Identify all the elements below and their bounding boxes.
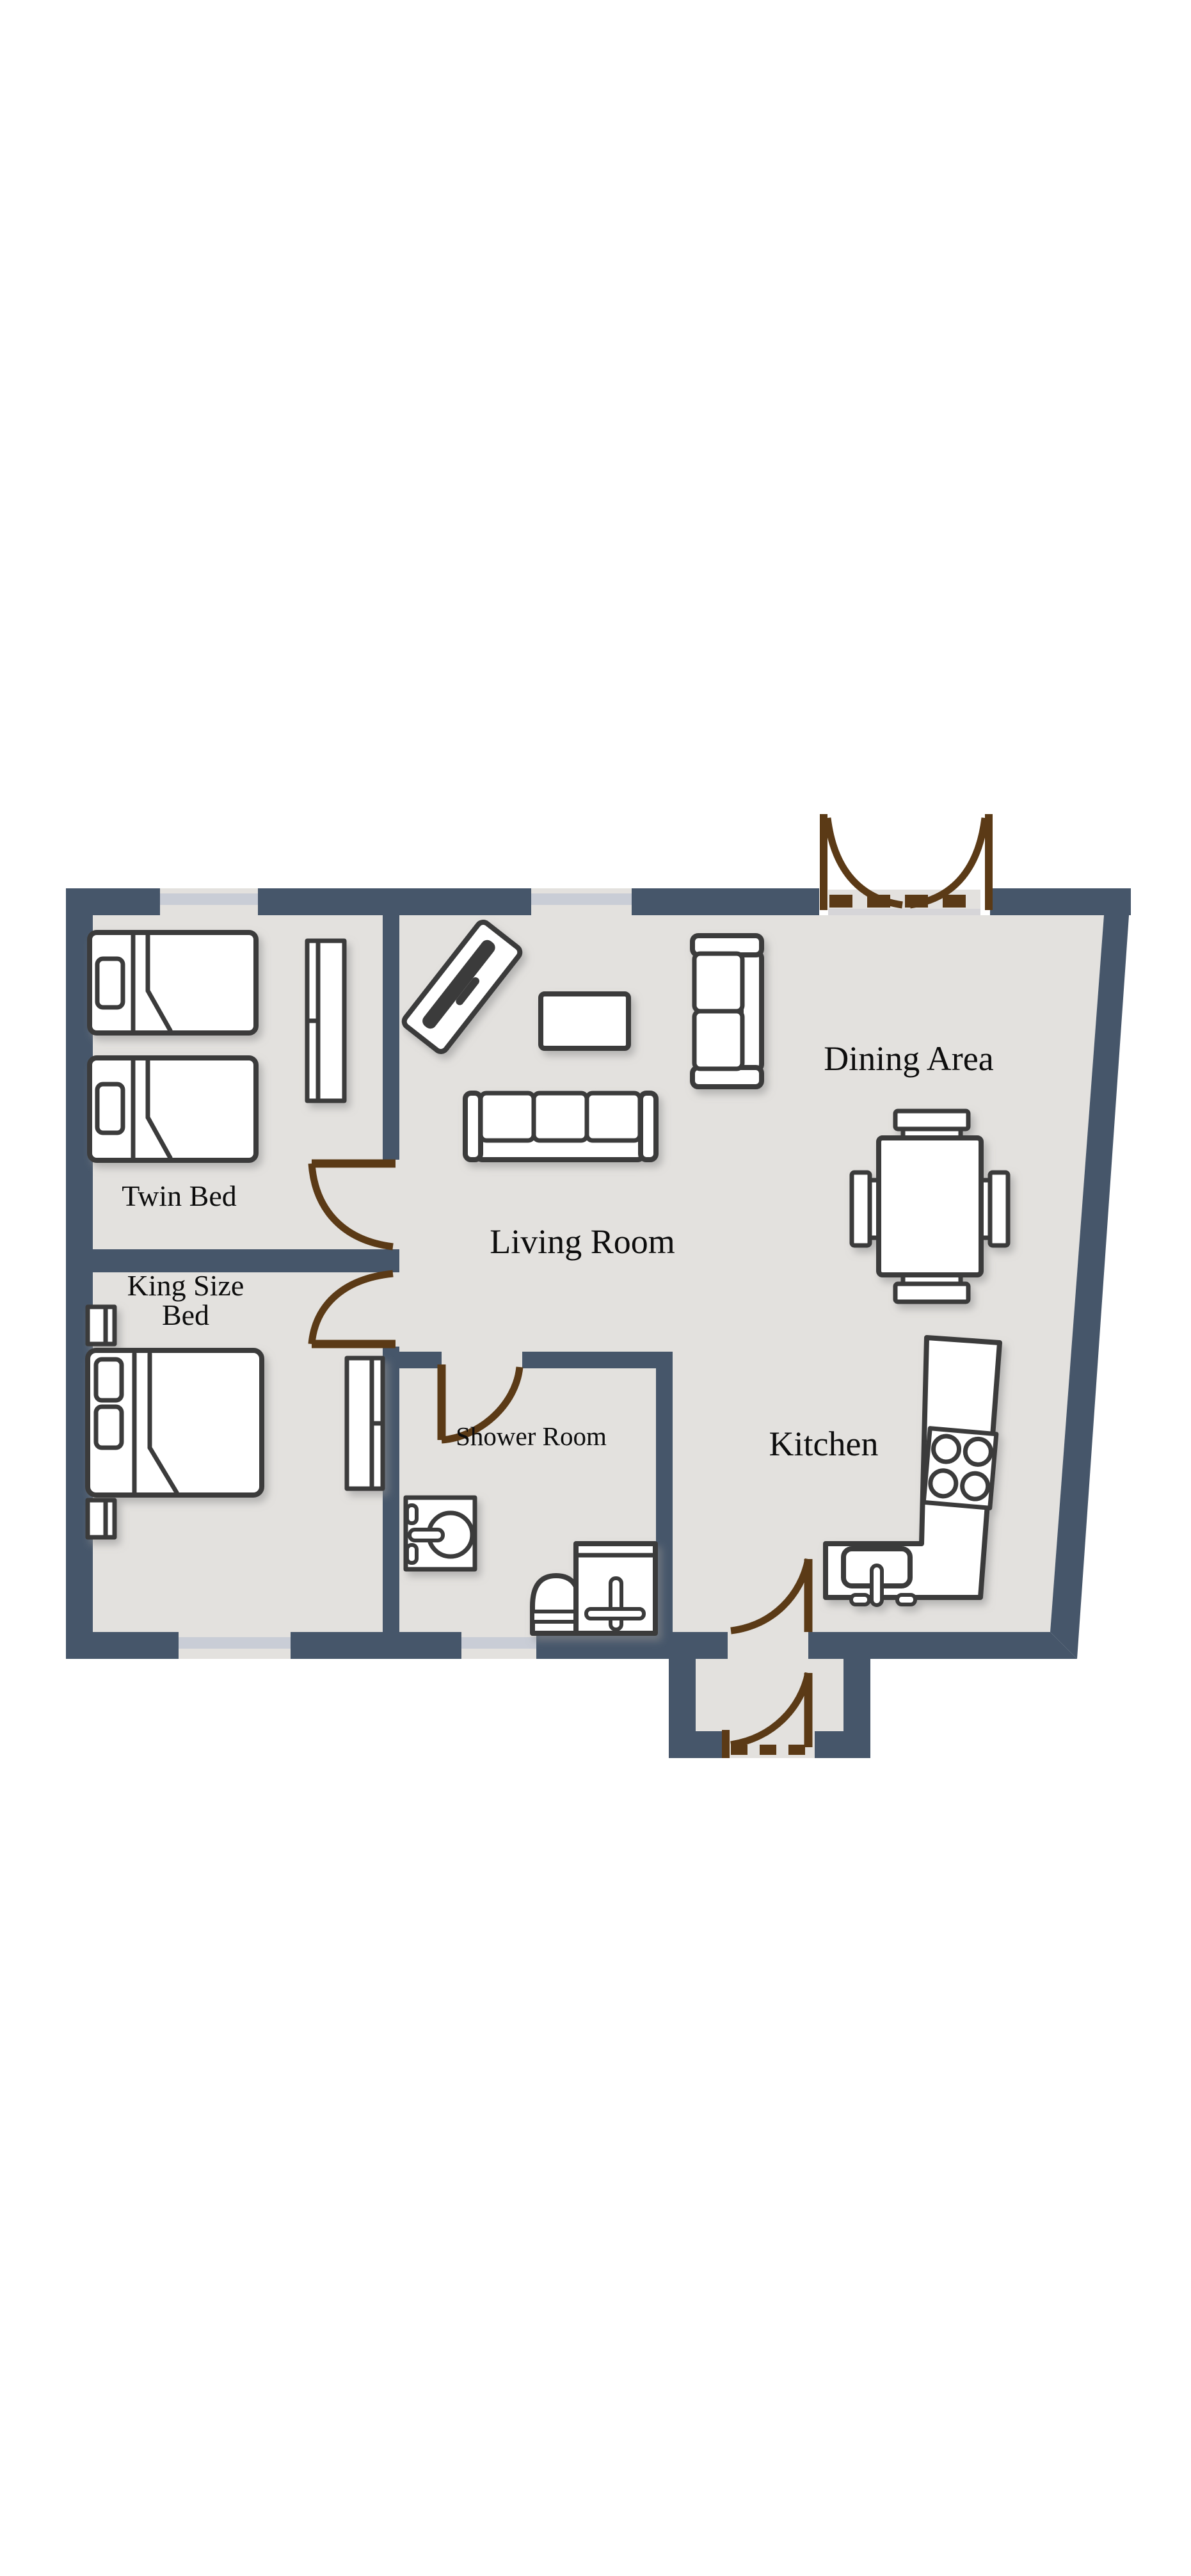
toilet-icon xyxy=(532,1576,580,1633)
burner xyxy=(961,1473,989,1500)
window-living-room xyxy=(531,893,632,905)
shower-icon xyxy=(576,1544,655,1633)
wall-shower-north-left xyxy=(399,1352,442,1368)
room-label-living-room: Living Room xyxy=(490,1222,675,1261)
pillow xyxy=(96,1407,122,1448)
nightstand-top xyxy=(88,1307,115,1344)
twin-bed-1 xyxy=(90,932,256,1033)
pillow xyxy=(97,1084,123,1133)
kitchen-sink-icon xyxy=(843,1549,915,1605)
sofa-arm-right xyxy=(641,1093,656,1160)
dining-chair-top xyxy=(895,1111,968,1139)
wall-vestibule-bottom-right xyxy=(815,1731,870,1758)
wall-twin-living xyxy=(383,915,399,1160)
dining-table xyxy=(879,1138,981,1275)
room-label-king-size-line2: Bed xyxy=(162,1299,209,1331)
sofa-cushion xyxy=(481,1093,534,1140)
wall-king-shower xyxy=(383,1347,399,1632)
window-twin-room xyxy=(160,893,258,905)
sofa-cushion xyxy=(534,1093,587,1140)
wall-shower-north-right xyxy=(522,1352,673,1368)
window-king-room xyxy=(179,1637,291,1649)
pillow xyxy=(97,959,123,1007)
loveseat xyxy=(692,936,762,1087)
hob-icon xyxy=(923,1428,996,1508)
twin-wardrobe xyxy=(307,941,344,1101)
tap-handle xyxy=(897,1595,915,1604)
floor-plan-page: Twin Bed King Size Bed Living Room Dinin… xyxy=(0,0,1191,2576)
king-wardrobe xyxy=(347,1358,383,1489)
faucet xyxy=(410,1530,443,1540)
coffee-table xyxy=(541,994,628,1048)
window-shower-room xyxy=(461,1637,536,1649)
loveseat-cushion xyxy=(694,1011,742,1069)
wall-top-3 xyxy=(632,888,819,915)
wall-bottom-1 xyxy=(66,1632,179,1659)
room-label-king-size-line1: King Size xyxy=(127,1269,244,1302)
dining-chair-bottom xyxy=(895,1274,968,1302)
burner xyxy=(964,1438,992,1466)
wall-vestibule-bottom-left xyxy=(669,1731,725,1758)
room-label-kitchen: Kitchen xyxy=(769,1425,879,1463)
floor-plan-drawing: Twin Bed King Size Bed Living Room Dinin… xyxy=(0,0,1191,2576)
faucet xyxy=(872,1565,882,1605)
loveseat-cushion xyxy=(694,954,742,1011)
wall-bottom-4 xyxy=(808,1632,1077,1659)
tap-handle xyxy=(851,1595,869,1604)
wall-bottom-3 xyxy=(536,1632,728,1659)
burner xyxy=(929,1469,957,1497)
pillow xyxy=(96,1359,122,1400)
room-label-dining-area: Dining Area xyxy=(824,1039,993,1078)
wall-top-2 xyxy=(258,888,531,915)
french-door-sill xyxy=(828,909,980,915)
sofa xyxy=(465,1093,656,1160)
nightstand-bottom xyxy=(88,1500,115,1537)
sofa-cushion xyxy=(587,1093,640,1140)
bathroom-sink-icon xyxy=(406,1498,475,1569)
room-label-twin-bed: Twin Bed xyxy=(122,1180,237,1212)
burner xyxy=(932,1435,960,1462)
wall-bottom-2 xyxy=(291,1632,461,1659)
room-label-shower-room: Shower Room xyxy=(456,1421,607,1451)
twin-bed-2 xyxy=(90,1058,256,1160)
sofa-arm-left xyxy=(465,1093,481,1160)
wall-shower-east xyxy=(656,1352,673,1632)
king-bed xyxy=(88,1350,262,1495)
